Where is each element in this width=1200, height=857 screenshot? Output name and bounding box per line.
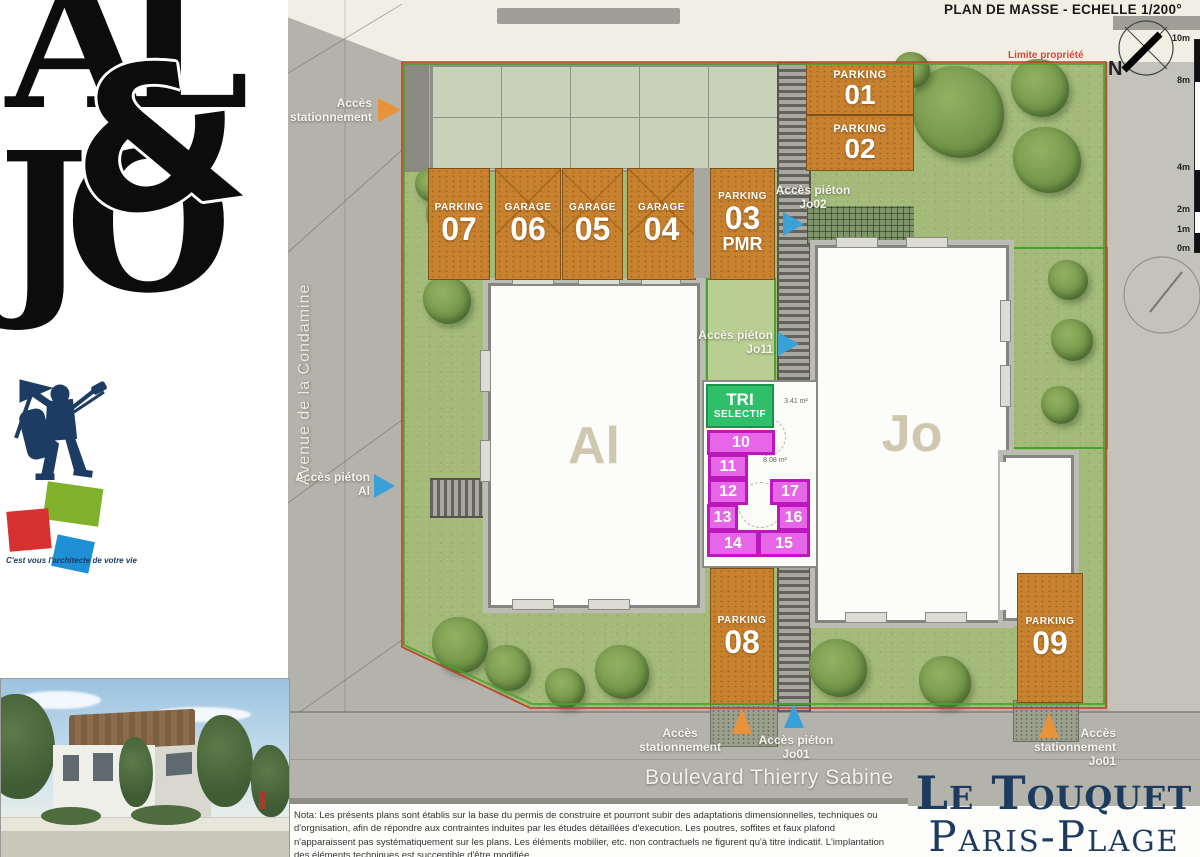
garage-gap xyxy=(694,168,710,278)
balcony xyxy=(925,612,967,623)
photo-bush xyxy=(131,805,201,825)
scale-label-8m: 8m xyxy=(1162,75,1190,85)
photo-window xyxy=(93,753,113,781)
brand-square-green xyxy=(43,481,104,526)
access-jo02-arrow xyxy=(783,212,804,236)
building-al-label: Al xyxy=(568,416,620,476)
balcony xyxy=(588,599,630,610)
tree xyxy=(1048,260,1088,300)
property-line-label: Limite propriété xyxy=(1008,50,1084,61)
balcony xyxy=(480,350,491,392)
brand-tagline: C'est vous l'architecte de votre vie xyxy=(6,556,206,565)
tree xyxy=(595,645,649,699)
access-south-parking-label: Accès stationnement xyxy=(636,726,724,754)
stall-12: 12 xyxy=(708,479,748,505)
photo-tree xyxy=(0,694,55,799)
photo-window xyxy=(166,752,192,776)
area-note-2: 8.08 m² xyxy=(758,457,792,465)
secondary-compass-icon xyxy=(1112,250,1200,345)
tree xyxy=(919,656,971,708)
tree xyxy=(1011,59,1069,117)
building-jo-label: Jo xyxy=(882,404,943,464)
project-photo xyxy=(0,678,290,857)
west-driveway-strip xyxy=(403,64,429,172)
boulevard-label: Boulevard Thierry Sabine xyxy=(645,766,894,790)
golfer-silhouette xyxy=(8,376,120,480)
access-jo01-arrow xyxy=(784,704,804,728)
garage-04: GARAGE 04 xyxy=(627,168,696,280)
photo-window xyxy=(63,755,79,781)
balcony xyxy=(836,237,878,248)
balcony xyxy=(845,612,887,623)
tree xyxy=(809,639,867,697)
access-jo11-arrow xyxy=(778,332,799,356)
stall-15: 15 xyxy=(758,530,810,557)
scale-label-2m: 2m xyxy=(1162,204,1190,214)
photo-tree xyxy=(119,737,153,807)
garage-06: GARAGE 06 xyxy=(495,168,561,280)
scale-label-1m: 1m xyxy=(1162,224,1190,234)
brand-square-red xyxy=(6,508,51,552)
parking-03-pmr: PARKING 03 PMR xyxy=(710,168,775,280)
west-entry-steps xyxy=(430,478,488,518)
north-letter: N xyxy=(1108,58,1122,81)
photo-ground xyxy=(1,831,289,857)
access-south-parking-arrow xyxy=(732,708,752,734)
access-west-parking-label: Accès stationnement xyxy=(288,96,372,124)
scale-bar xyxy=(1194,39,1200,253)
parked-car-shape xyxy=(497,8,680,24)
garage-05: GARAGE 05 xyxy=(562,168,623,280)
nota-text: Nota: Les présents plans sont établis su… xyxy=(294,810,884,857)
balcony xyxy=(1000,300,1011,342)
access-southeast-parking-arrow xyxy=(1039,712,1059,738)
logo-ampersand: & xyxy=(57,29,256,249)
site-plan-sheet: Al Jo TRI SELECTIF 3.41 m² 8.08 m² 10 11… xyxy=(0,0,1200,857)
balcony xyxy=(512,599,554,610)
city-line-1: Le Touquet xyxy=(908,770,1200,816)
stall-13: 13 xyxy=(707,504,738,531)
scale-label-4m: 4m xyxy=(1162,162,1190,172)
building-al: Al xyxy=(488,283,700,608)
north-compass-icon xyxy=(1108,12,1188,102)
building-jo: Jo xyxy=(815,245,1009,623)
tree xyxy=(1041,386,1079,424)
stall-17: 17 xyxy=(770,479,810,505)
tri-selectif-room: TRI SELECTIF xyxy=(706,384,774,428)
parking-08: PARKING 08 xyxy=(710,568,774,705)
stall-11: 11 xyxy=(708,454,748,479)
south-walkway xyxy=(777,556,811,712)
area-note-1: 3.41 m² xyxy=(780,398,812,406)
east-sidewalk xyxy=(1108,62,1200,712)
tree xyxy=(485,645,531,691)
access-jo01-label: Accès piéton Jo01 xyxy=(752,733,840,761)
stall-10: 10 xyxy=(707,430,775,455)
photo-bush xyxy=(41,807,101,825)
access-jo02-label: Accès piéton Jo02 xyxy=(773,183,853,211)
tree xyxy=(545,668,585,708)
city-line-2: Paris-Plage xyxy=(908,816,1200,857)
access-west-parking-arrow xyxy=(378,98,401,122)
building-jo-seam xyxy=(1000,462,1010,610)
parking-09: PARKING 09 xyxy=(1017,573,1083,703)
tree xyxy=(432,617,488,673)
city-logo: Le Touquet Paris-Plage xyxy=(908,770,1200,857)
photo-person xyxy=(259,791,266,809)
tree xyxy=(1013,127,1081,193)
access-al-arrow xyxy=(374,474,395,498)
parking-01: PARKING 01 xyxy=(806,63,914,115)
tree xyxy=(1051,319,1093,361)
access-jo11-label: Accès piéton Jo11 xyxy=(695,328,773,356)
driveway-grid xyxy=(430,64,781,172)
architect-logo-panel: AL JO & C'est vous l'architecte xyxy=(0,0,288,678)
parking-07: PARKING 07 xyxy=(428,168,490,280)
balcony xyxy=(480,440,491,482)
scale-label-0m: 0m xyxy=(1162,243,1190,253)
nota-panel: Nota: Les présents plans sont établis su… xyxy=(285,798,908,857)
avenue-label: Avenue de la Condamine xyxy=(296,185,314,485)
parking-02: PARKING 02 xyxy=(806,115,914,171)
tree xyxy=(423,276,471,324)
scale-label-10m: 10m xyxy=(1162,33,1190,43)
tri-label-2: SELECTIF xyxy=(708,408,772,421)
balcony xyxy=(906,237,948,248)
balcony xyxy=(1000,365,1011,407)
brand-square-blue xyxy=(51,534,95,573)
tri-label-1: TRI xyxy=(708,391,772,408)
stall-16: 16 xyxy=(777,504,810,531)
photo-tree xyxy=(197,715,253,807)
photo-tree xyxy=(251,745,290,817)
stall-14: 14 xyxy=(707,530,759,557)
